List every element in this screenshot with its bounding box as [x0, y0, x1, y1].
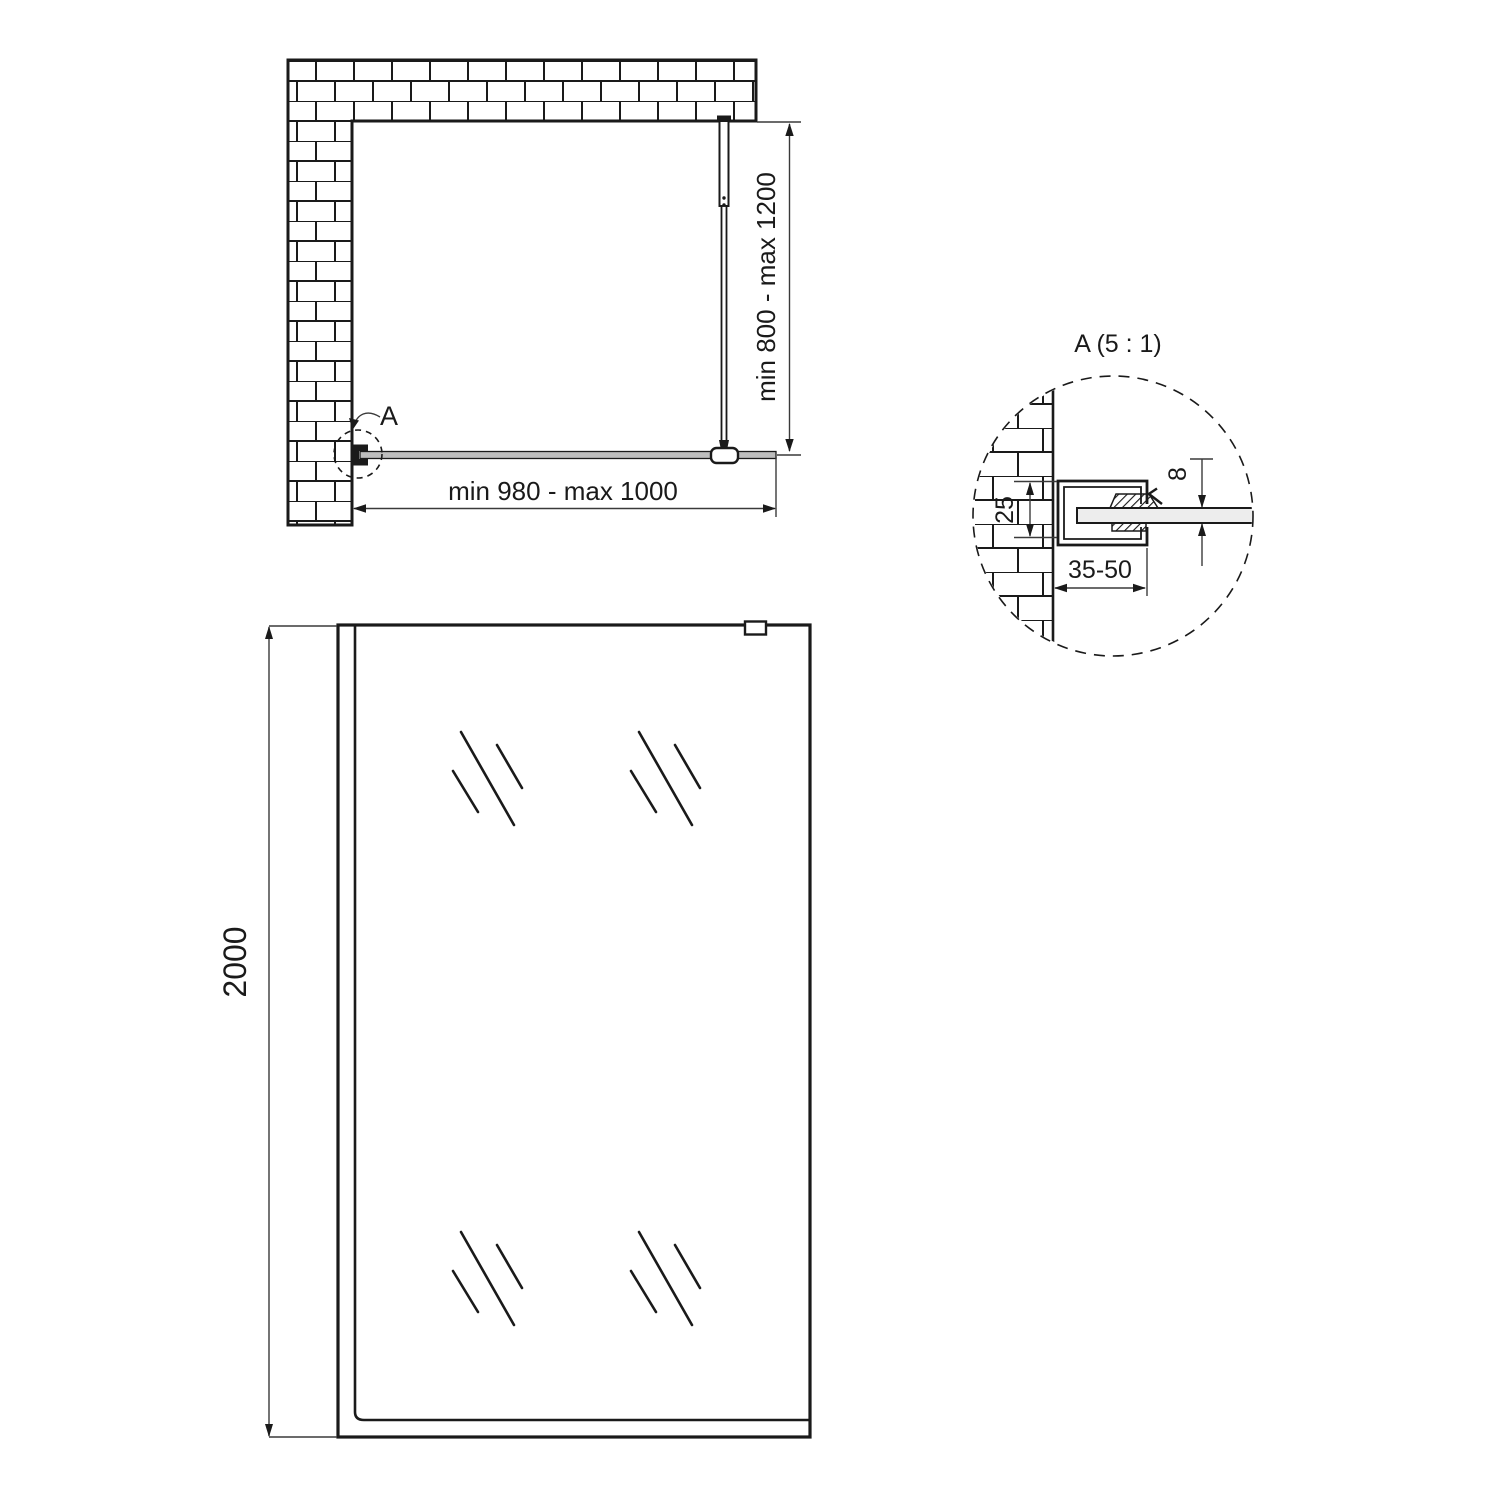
support-bar-screw: [722, 203, 725, 206]
detail-glass-panel: [1077, 508, 1257, 523]
detail-profile-depth-label: 35-50: [1068, 556, 1132, 584]
technical-drawing: A min 980 - max 1000 min 800 - max 1200 …: [0, 0, 1500, 1500]
front-height-dimension-label: 2000: [217, 926, 253, 997]
support-bar-glass-clamp: [711, 448, 738, 463]
front-glass-panel: [338, 625, 810, 1437]
support-bar-screw: [722, 196, 725, 199]
front-support-bar-bracket: [745, 622, 766, 635]
plan-width-dimension-label: min 980 - max 1000: [448, 476, 678, 506]
drawing-canvas: A min 980 - max 1000 min 800 - max 1200 …: [0, 0, 1500, 1500]
plan-depth-dimension-label: min 800 - max 1200: [751, 172, 781, 402]
detail-glass-thickness-label: 8: [1164, 467, 1192, 481]
support-bar-outer-tube: [720, 121, 729, 206]
detail-bottom-gasket: [1112, 523, 1146, 531]
detail-profile-height-label: 25: [991, 496, 1019, 524]
detail-view-title: A (5 : 1): [1074, 330, 1162, 358]
support-bar-inner-tube: [722, 206, 727, 442]
plan-detail-marker-label: A: [380, 401, 398, 431]
